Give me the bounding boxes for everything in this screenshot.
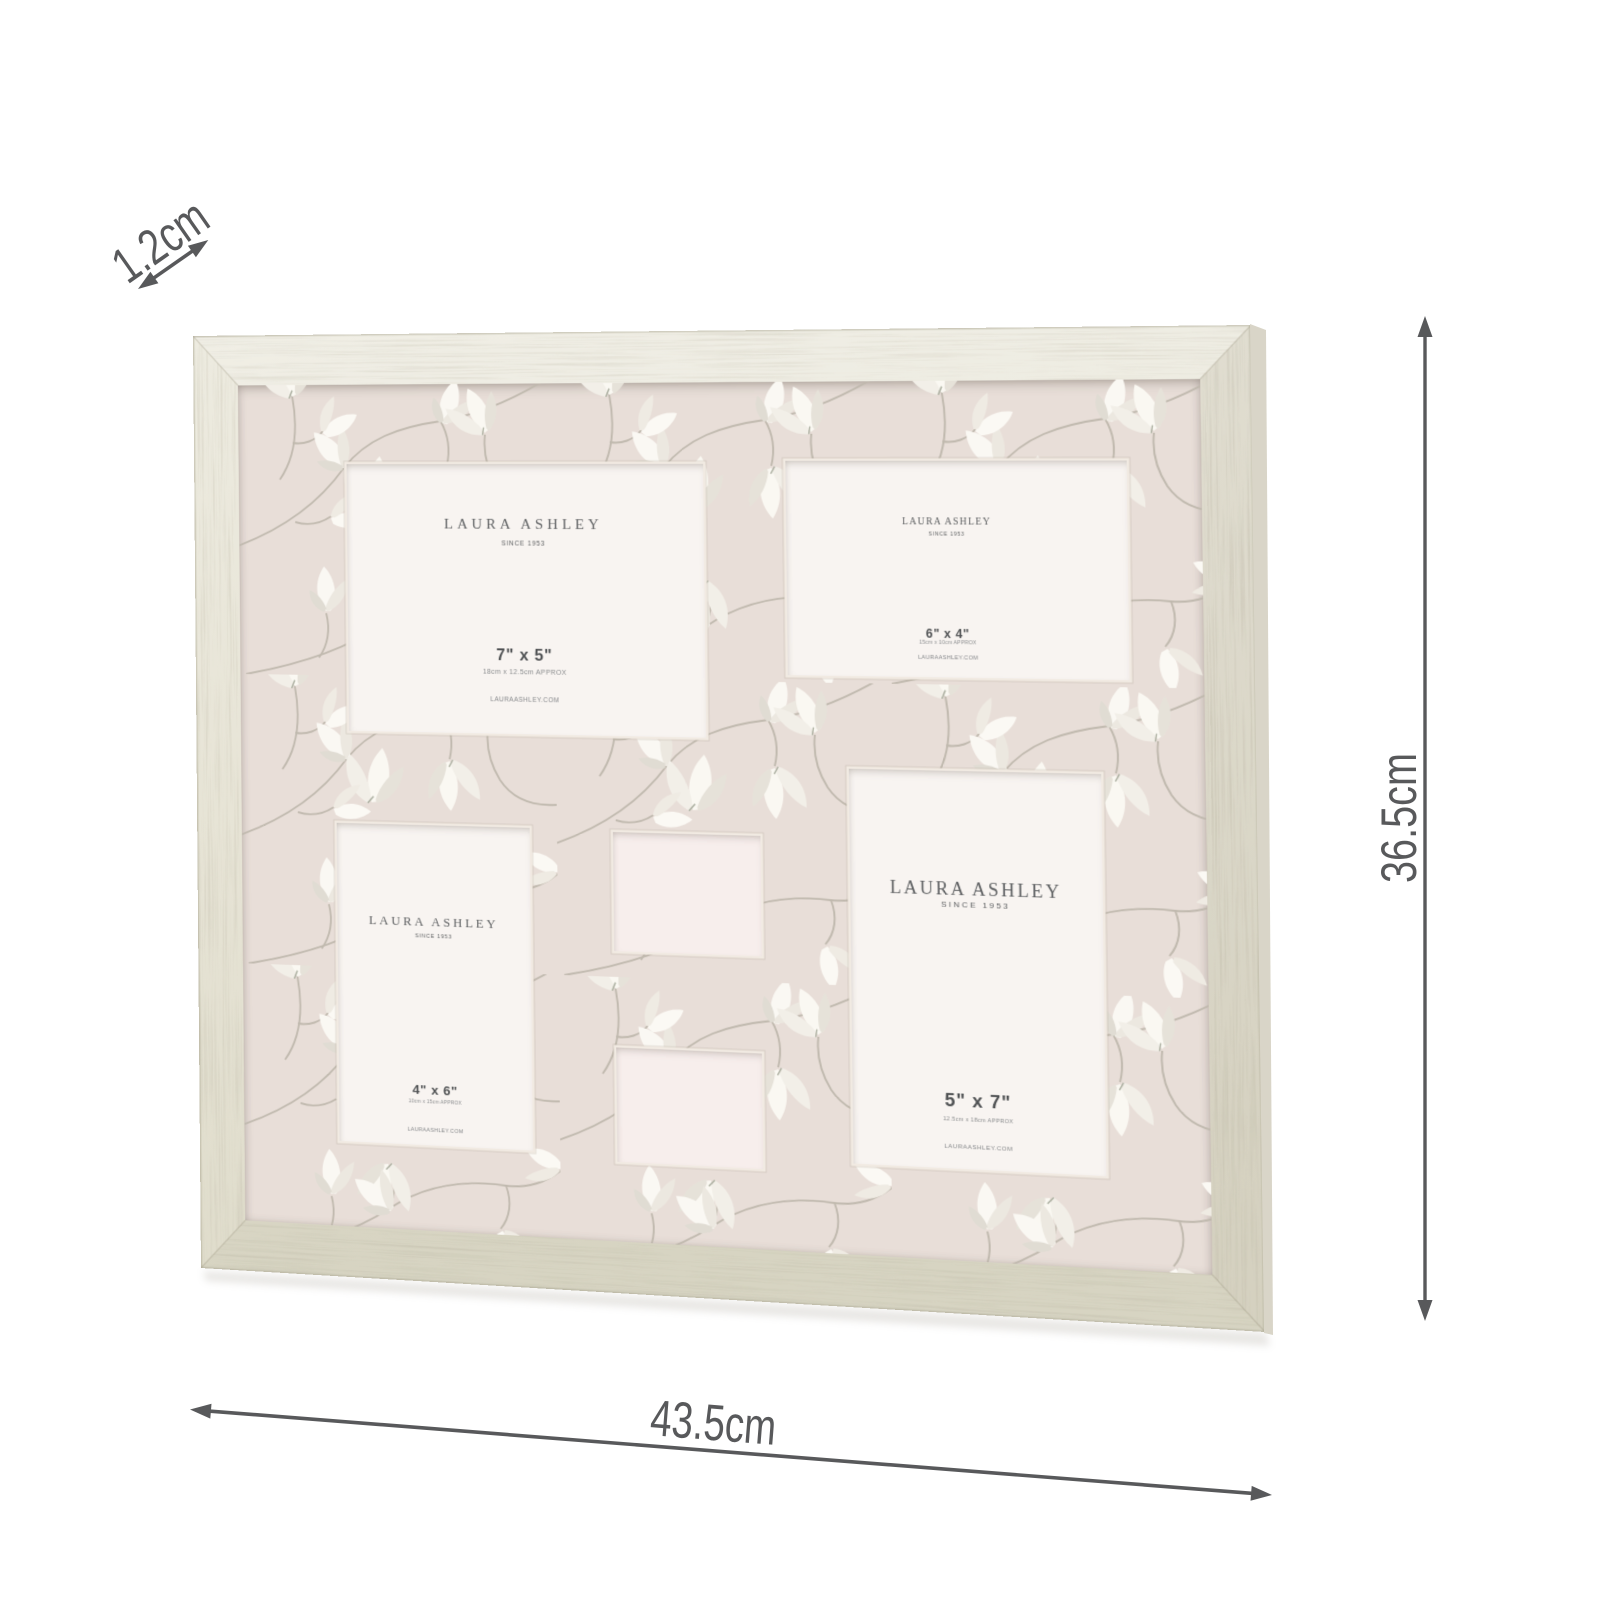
svg-text:36.5cm: 36.5cm [1371, 753, 1427, 883]
svg-text:1.2cm: 1.2cm [102, 188, 219, 294]
svg-text:43.5cm: 43.5cm [648, 1389, 778, 1456]
